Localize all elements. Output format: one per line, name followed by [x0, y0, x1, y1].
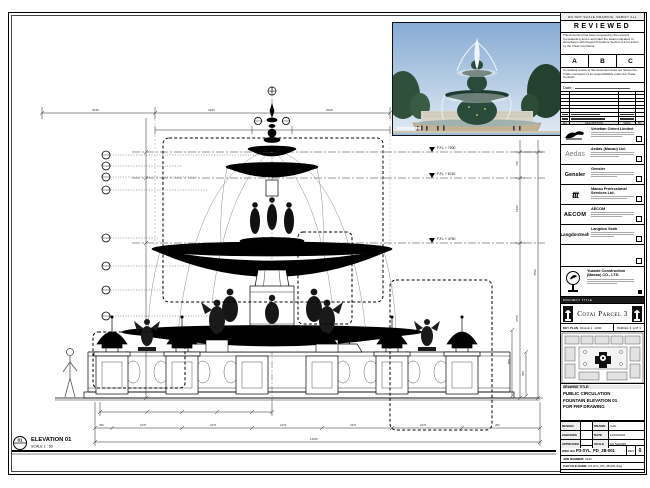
dim-text: 450 — [521, 371, 525, 376]
consultant-row-aedas: Aedas Aedas (Macau) Ltd. — [561, 145, 644, 165]
fountain-photo-scene — [393, 23, 560, 133]
address-lines — [591, 196, 642, 199]
dim-text: 7500 — [533, 269, 537, 276]
drawing-title-label: DRAWING TITLE: — [563, 385, 642, 389]
drawing-sheet: F.F.L + 7500 F.F.L + 6740 F.F.L + 4750 F… — [0, 0, 650, 488]
elevation-label: ELEVATION 01 — [31, 437, 72, 443]
project-title-label: PROJECT TITLE — [561, 297, 644, 304]
drawing-title-block: DRAWING TITLE: PUBLIC CIRCULATION FOUNTA… — [561, 384, 644, 422]
consultant-row-venetian: Venetian Orient Limited — [561, 125, 644, 145]
consultant-row-gensler: Gensler Gensler — [561, 165, 644, 185]
contractor-checkbox — [638, 290, 642, 294]
dim-text: 13250 — [310, 437, 318, 441]
key-plan-scale: SCALE 1 : 1000 — [580, 326, 602, 330]
dim-text: 450 — [495, 423, 500, 427]
top-dimensions — [40, 107, 392, 250]
dim-text: 760 — [515, 161, 519, 166]
project-name: Cotai Parcel 3 — [577, 310, 628, 318]
elevation-title: 01 ELEVATION 01 SCALE 1 : 50 — [12, 437, 556, 455]
langdonseah-logo: LangdonSeah — [561, 225, 589, 244]
date-line[interactable] — [575, 84, 630, 89]
level-label: F.F.L + 4750 — [437, 237, 456, 241]
aecom-logo: AECOM — [561, 205, 589, 224]
address-lines — [591, 152, 642, 157]
status-box-c[interactable]: C — [617, 55, 644, 67]
dim-text: 2470 — [210, 423, 217, 427]
rev-label: REV — [626, 446, 635, 455]
revision-table: NO. DESCRIPTION DATE BY — [561, 92, 644, 125]
dim-text: 2470 — [140, 423, 147, 427]
level-label: F.F.L + 6740 — [437, 172, 456, 176]
gensler-logo: Gensler — [561, 165, 589, 184]
venetian-lion-logo-icon — [561, 125, 589, 144]
consultant-checkbox[interactable] — [636, 258, 642, 264]
aedas-logo: Aedas — [561, 145, 589, 164]
consultant-row-langdonseah: LangdonSeah Langdon Seah — [561, 225, 644, 245]
photo-watermark — [397, 127, 421, 129]
consultant-row-aecom: AECOM AECOM — [561, 205, 644, 225]
job-number-row: JOB NUMBER: 3123 — [561, 456, 644, 463]
key-plan-map — [561, 332, 644, 384]
drawing-title-line: FOR FRP DRAWING — [563, 404, 642, 411]
consultant-checkbox[interactable] — [636, 216, 642, 222]
elevation-tag: 01 — [18, 438, 23, 443]
dim-text: 2640 — [92, 108, 99, 112]
drawing-title-line: PUBLIC CIRCULATION — [563, 391, 642, 398]
consultant-row-mps: ttt Macau Professional Services Ltd. — [561, 185, 644, 205]
consultant-checkbox[interactable] — [636, 236, 642, 242]
address-lines — [587, 279, 642, 284]
dim-text: 2470 — [280, 423, 287, 427]
dim-text: 2470 — [420, 423, 427, 427]
dim-text: 450 — [99, 423, 104, 427]
project-name-band: Cotai Parcel 3 — [561, 304, 644, 324]
sheet-note-strip: DO NOT SCALE DRAWING. VERIFY ALL DIMENSI… — [561, 13, 644, 21]
rev-value: 0 — [635, 446, 644, 455]
scale-figure — [63, 349, 77, 398]
drawing-title-line: FOUNTAIN ELEVATION 01 — [563, 398, 642, 405]
consultant-checkbox[interactable] — [636, 136, 642, 142]
consultant-checkbox[interactable] — [636, 176, 642, 182]
consultant-checkbox[interactable] — [636, 196, 642, 202]
stamp-date-row: Date : — [561, 83, 644, 92]
reviewed-stamp-text-2: Consultant review of this document does … — [561, 68, 644, 83]
address-lines — [591, 232, 642, 237]
address-lines — [591, 212, 642, 217]
reference-photo — [392, 22, 563, 136]
status-box-a[interactable]: A — [561, 55, 589, 67]
dim-text: 2640 — [326, 108, 333, 112]
signoff-table: DESIGN DRAWNCAD CHECKED- DATE12/04/2016 … — [561, 422, 644, 446]
consultant-row-empty — [561, 245, 644, 267]
level-label: F.F.L + 7500 — [437, 146, 456, 150]
key-plan-zone: PARCEL 3, LOT 3 — [614, 324, 644, 331]
dim-text: 1690 — [208, 108, 215, 112]
review-status-boxes: A B C — [561, 55, 644, 68]
lamp-ornament-icon — [632, 306, 642, 322]
key-plan-header: KEY PLAN SCALE 1 : 1000 PARCEL 3, LOT 3 — [561, 324, 644, 332]
status-box-b[interactable]: B — [589, 55, 617, 67]
dwg-no-value: P3-SYL_PD_JB-001 — [576, 448, 626, 453]
date-label: Date : — [563, 85, 574, 90]
dwg-no-label: DWG NO. — [561, 449, 576, 453]
triton-figures — [250, 197, 294, 234]
dim-text: 800 — [507, 359, 511, 364]
dim-text: 1990 — [515, 205, 519, 212]
consultant-checkbox[interactable] — [636, 156, 642, 162]
revision-table-header: NO. DESCRIPTION DATE BY — [561, 121, 644, 124]
contractor-block: Yuande Construction (Macau) CO., LTD. — [561, 267, 644, 297]
level-lines — [132, 152, 545, 243]
title-block: DO NOT SCALE DRAWING. VERIFY ALL DIMENSI… — [560, 12, 645, 473]
address-lines — [591, 172, 642, 177]
dwg-number-row: DWG NO. P3-SYL_PD_JB-001 REV 0 — [561, 446, 644, 456]
reviewed-stamp-title: REVIEWED — [561, 21, 644, 33]
elevation-scale: SCALE 1 : 50 — [31, 445, 53, 449]
cad-file-row: CAD FILE NAME: P3-SYL_PD_JB-001.dwg — [561, 463, 644, 470]
address-lines — [591, 132, 642, 137]
reference-file-row: REFERENCE DWG FILE NAME: — [561, 470, 644, 472]
dim-text: 4750 — [515, 315, 519, 322]
contractor-bird-logo-icon — [561, 267, 585, 296]
dim-text: 2470 — [350, 423, 357, 427]
fountain-structure — [122, 104, 422, 352]
lamp-ornament-icon — [563, 306, 573, 322]
key-plan-label: KEY PLAN — [563, 326, 578, 330]
mps-logo: ttt — [561, 185, 589, 204]
reviewed-stamp-text-1: This document has been reviewed by the r… — [561, 33, 644, 55]
